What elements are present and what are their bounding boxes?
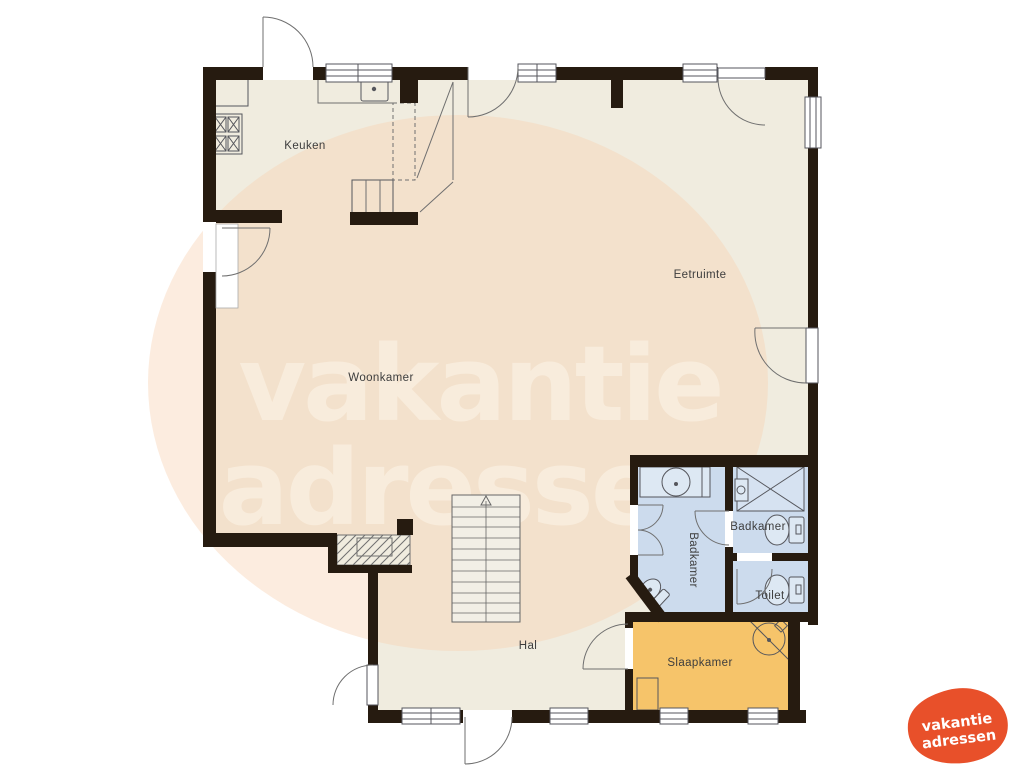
wall-kitchen-counter [350,212,418,225]
wall-woonkamer-bottom [203,533,337,547]
wall-dining-stub [611,80,623,108]
wall-left [203,67,216,547]
floorplan-drawing: vakantie adressen [0,0,1024,768]
label-eetruimte: Eetruimte [674,269,727,281]
wall-pillar [397,519,413,535]
wall-bedroom-right [788,618,800,712]
window-bedroom-2 [748,708,778,724]
label-badkamer-right: Badkamer [730,521,786,533]
hatched-block [337,535,410,565]
window-top-center [518,64,556,82]
label-woonkamer: Woonkamer [348,372,413,384]
small-sink [735,479,748,501]
door-entrance [465,717,512,764]
label-keuken: Keuken [284,140,325,152]
window-hall-2 [550,708,588,724]
window-kitchen [326,64,392,82]
window-hall-1 [402,708,460,724]
logo: vakantie adressen [908,688,1008,763]
wall-kitchen-stub-top [400,67,418,103]
label-badkamer-left: Badkamer [687,532,699,588]
wall-kitchen-stub-left [203,210,282,223]
label-hal: Hal [519,640,537,652]
window-bedroom-1 [660,708,688,724]
staircase [452,495,520,622]
door-top-left-exterior [263,17,313,67]
floorplan-page: vakantie adressen [0,0,1024,768]
wall-bathroom-top [630,455,818,467]
label-slaapkamer: Slaapkamer [667,657,732,669]
window-right-wall [805,97,821,148]
window-top-right [683,64,717,82]
door-hall-left-exterior [333,665,378,705]
label-toilet: Toilet [755,590,785,602]
